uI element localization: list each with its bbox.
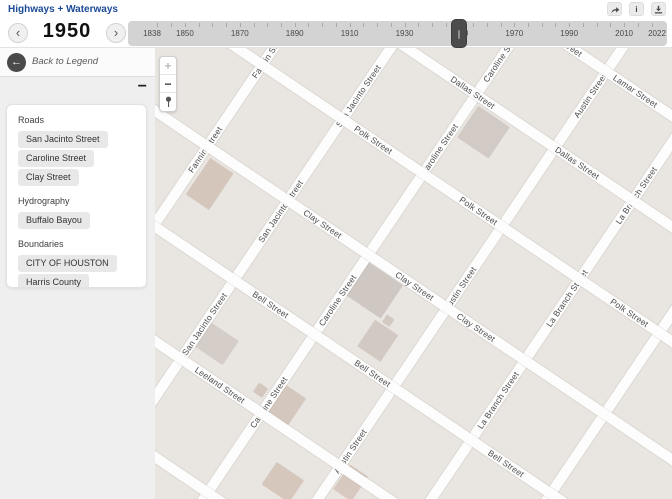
timeline-handle[interactable]	[451, 19, 467, 48]
header-icons: i	[607, 2, 666, 16]
timeline-tick	[377, 23, 378, 27]
timeline-tick	[185, 23, 186, 27]
map-street-grid: Fannin StreetFannin StreetSan Jacinto St…	[155, 48, 672, 499]
timeline-tick	[501, 23, 502, 27]
street-label: Clay Street	[301, 207, 343, 240]
legend-section-boundaries: Boundaries CITY OF HOUSTON Harris County	[18, 239, 136, 288]
download-icon	[654, 5, 663, 14]
info-button[interactable]: i	[629, 2, 644, 16]
legend-item-city-of-houston[interactable]: CITY OF HOUSTON	[18, 255, 117, 272]
timeline-tick	[446, 23, 447, 27]
street-label: Bell Street	[353, 358, 393, 389]
download-button[interactable]	[651, 2, 666, 16]
timeline-tick	[624, 23, 625, 27]
timeline-year-label: 2010	[615, 29, 633, 38]
timeline-tick	[157, 23, 158, 27]
map-zoom-control: + −	[159, 56, 177, 112]
legend-section-roads: Roads San Jacinto Street Caroline Street…	[18, 115, 136, 187]
street-label: Caroline Street	[317, 273, 359, 328]
street-label: Caroline Street	[481, 48, 523, 84]
timeline-tick	[405, 23, 406, 27]
timeline-tick	[514, 23, 515, 27]
timeline-tick	[432, 23, 433, 27]
street-label: Lamar Street	[536, 48, 584, 59]
timeline-tick	[226, 23, 227, 27]
timeline-tick	[267, 23, 268, 27]
timeline-tick	[171, 23, 172, 27]
street-label: Lamar Street	[611, 73, 659, 110]
timeline-year-label: 1838	[143, 29, 161, 38]
pin-icon	[164, 96, 173, 108]
timeline-tick	[583, 23, 584, 27]
timeline-tick	[569, 23, 570, 27]
timeline-year-label: 1970	[505, 29, 523, 38]
timeline-tick	[281, 23, 282, 27]
next-year-button[interactable]: ›	[106, 23, 126, 43]
timeline-tick	[610, 23, 611, 27]
timeline-tick	[418, 23, 419, 27]
timeline-tick	[350, 23, 351, 27]
app-title-link[interactable]: Highways + Waterways	[8, 4, 118, 15]
sidebar: ← Back to Legend − Roads San Jacinto Str…	[0, 48, 155, 499]
timeline-tick	[212, 23, 213, 27]
timeline-tick	[391, 23, 392, 27]
legend-item-caroline[interactable]: Caroline Street	[18, 150, 94, 167]
share-button[interactable]	[607, 2, 622, 16]
zoom-in-button[interactable]: +	[160, 57, 176, 75]
legend-item-san-jacinto[interactable]: San Jacinto Street	[18, 131, 108, 148]
timeline-year-label: 1910	[341, 29, 359, 38]
legend-section-title: Roads	[18, 115, 136, 125]
street-label: Austin Street	[572, 72, 609, 120]
timeline-tick	[542, 23, 543, 27]
legend-section-title: Hydrography	[18, 196, 136, 206]
timeline-slider[interactable]: 1838185018701890191019301950197019902010…	[128, 21, 667, 46]
share-icon	[610, 5, 620, 14]
legend-item-clay[interactable]: Clay Street	[18, 169, 79, 186]
prev-year-button[interactable]: ‹	[8, 23, 28, 43]
app-window: Highways + Waterways i ‹ 1950 › 18381850…	[0, 0, 672, 499]
timeline-tick	[295, 23, 296, 27]
home-extent-button[interactable]	[160, 93, 176, 111]
street-label: Polk Street	[609, 296, 651, 329]
timeline-tick	[528, 23, 529, 27]
legend-item-harris-county[interactable]: Harris County	[18, 274, 89, 288]
street-label: Polk Street	[352, 124, 394, 157]
timeline-tick	[363, 23, 364, 27]
timeline-year-label: 1990	[560, 29, 578, 38]
timeline-tick	[199, 23, 200, 27]
street-label: Bell Street	[251, 289, 291, 320]
legend-card: Roads San Jacinto Street Caroline Street…	[6, 104, 147, 288]
timeline-tick	[652, 23, 653, 27]
street-label: Clay Street	[455, 311, 497, 344]
back-to-legend-label: Back to Legend	[32, 56, 98, 67]
timeline-year-label: 1870	[231, 29, 249, 38]
timeline-year-label: 1850	[176, 29, 194, 38]
zoom-out-button[interactable]: −	[160, 75, 176, 93]
back-arrow-icon: ←	[7, 53, 26, 72]
timeline-tick	[308, 23, 309, 27]
legend-section-hydrography: Hydrography Buffalo Bayou	[18, 196, 136, 230]
timeline-tick	[638, 23, 639, 27]
timeline-year-label: 1930	[396, 29, 414, 38]
timeline-tick	[597, 23, 598, 27]
street-label: Leeland Street	[193, 365, 247, 406]
street-label: Dallas Street	[553, 144, 601, 181]
legend-section-title: Boundaries	[18, 239, 136, 249]
map-building	[357, 320, 398, 362]
current-year: 1950	[30, 20, 104, 43]
timeline-year-label: 1890	[286, 29, 304, 38]
timeline-year-label: 2022	[648, 29, 666, 38]
street-label: La Branch Street	[475, 370, 521, 431]
timeline-tick	[254, 23, 255, 27]
timeline-tick	[322, 23, 323, 27]
back-to-legend-button[interactable]: ← Back to Legend	[0, 48, 155, 77]
timeline-tick	[487, 23, 488, 27]
map-canvas[interactable]: Fannin StreetFannin StreetSan Jacinto St…	[155, 48, 672, 499]
legend-item-buffalo-bayou[interactable]: Buffalo Bayou	[18, 212, 90, 229]
legend-collapse-button[interactable]: −	[138, 80, 147, 94]
map-building	[262, 462, 304, 499]
street-label: Polk Street	[458, 195, 500, 228]
street-label: Bell Street	[486, 448, 526, 479]
timeline-tick	[336, 23, 337, 27]
timeline-tick	[473, 23, 474, 27]
timeline-tick	[555, 23, 556, 27]
timeline-tick	[240, 23, 241, 27]
info-icon: i	[635, 5, 637, 14]
top-bar: Highways + Waterways i ‹ 1950 › 18381850…	[0, 0, 672, 48]
